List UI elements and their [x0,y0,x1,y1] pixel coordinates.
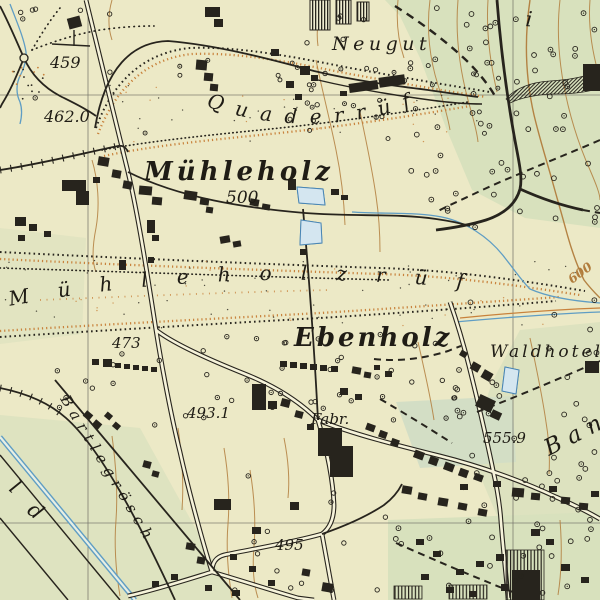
label-ebenholz: Ebenholz [293,323,452,353]
map-svg: 459 462.0 Neugut Quaderrüfe Mühleholz 50… [0,0,600,600]
label-muehleholz: Mühleholz [143,157,334,187]
label-fabrik: Fabr. [310,410,349,428]
pond-symbol [20,54,28,62]
label-neugut: Neugut [331,33,431,55]
elevation-462: 462.0 [43,107,90,126]
elevation-473: 473 [111,334,141,352]
elevation-500: 500 [226,188,259,208]
elevation-495: 495 [274,536,304,554]
elevation-493: 493.1 [186,404,230,422]
map-canvas[interactable]: 459 462.0 Neugut Quaderrüfe Mühleholz 50… [0,0,600,600]
elevation-555: 555.9 [483,429,526,447]
label-waldhotel: Waldhotel [490,342,600,362]
elevation-459: 459 [49,53,81,72]
